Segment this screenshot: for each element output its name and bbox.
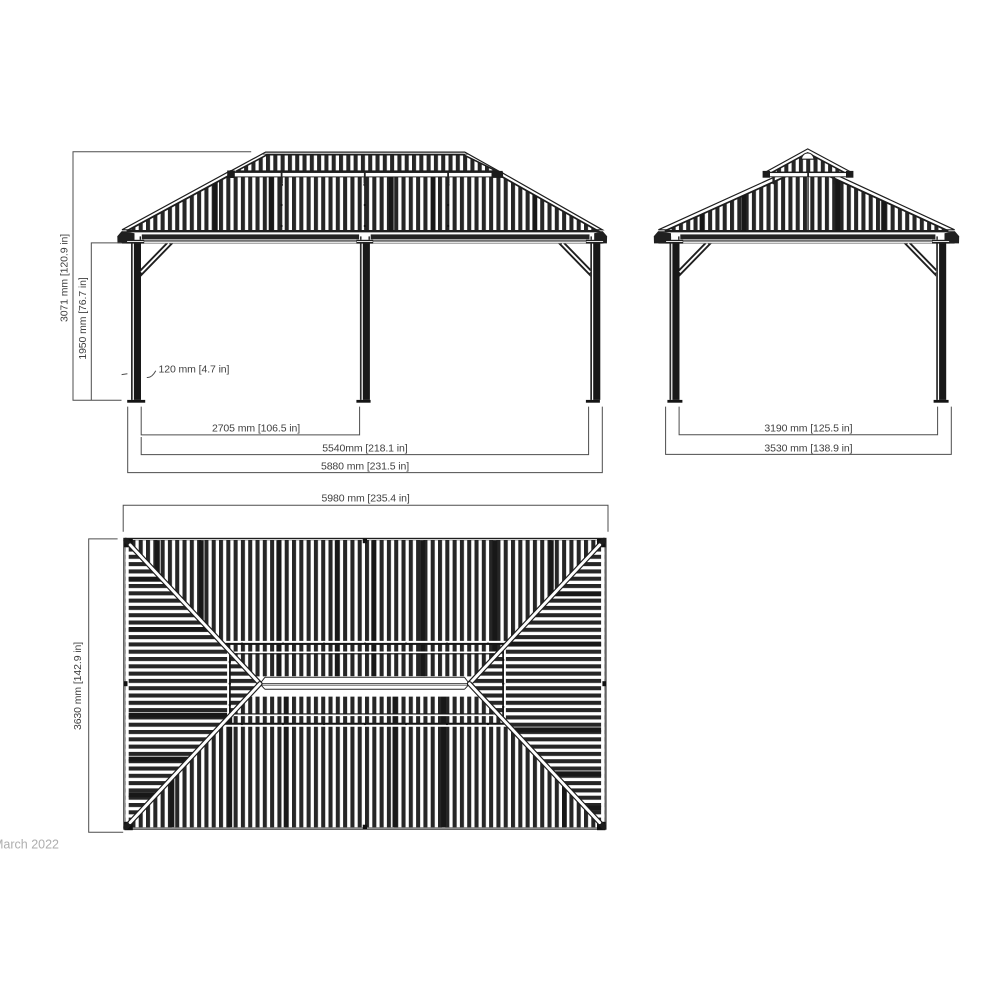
svg-text:3071 mm [120.9 in]: 3071 mm [120.9 in]: [59, 234, 71, 322]
svg-text:5980 mm [235.4 in]: 5980 mm [235.4 in]: [322, 493, 410, 505]
svg-text:5540mm [218.1 in]: 5540mm [218.1 in]: [322, 443, 407, 455]
svg-text:3530 mm [138.9 in]: 3530 mm [138.9 in]: [764, 443, 852, 455]
svg-text:120 mm [4.7 in]: 120 mm [4.7 in]: [159, 363, 230, 375]
svg-text:3190 mm [125.5 in]: 3190 mm [125.5 in]: [764, 423, 852, 435]
svg-text:5880 mm [231.5 in]: 5880 mm [231.5 in]: [321, 460, 409, 472]
svg-text:March 2022: March 2022: [0, 838, 59, 852]
svg-text:1950 mm [76.7 in]: 1950 mm [76.7 in]: [77, 277, 89, 360]
svg-text:3630 mm [142.9 in]: 3630 mm [142.9 in]: [72, 642, 84, 730]
svg-text:2705 mm [106.5 in]: 2705 mm [106.5 in]: [212, 423, 300, 435]
